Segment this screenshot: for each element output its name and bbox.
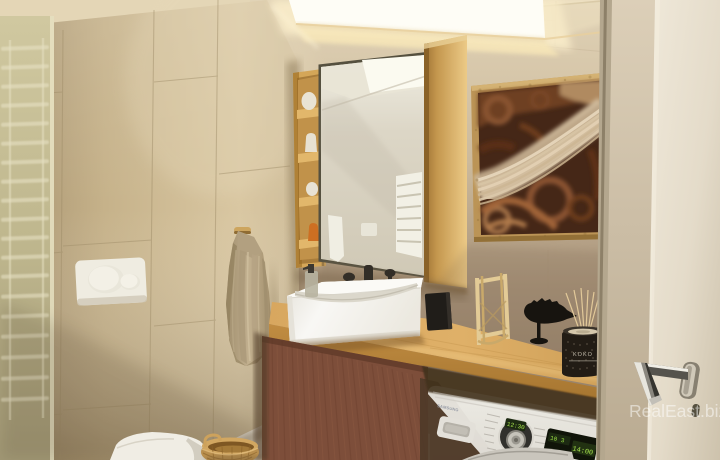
svg-text:RealEast.biz: RealEast.biz [629,401,720,421]
svg-text:KOKO: KOKO [573,352,593,358]
